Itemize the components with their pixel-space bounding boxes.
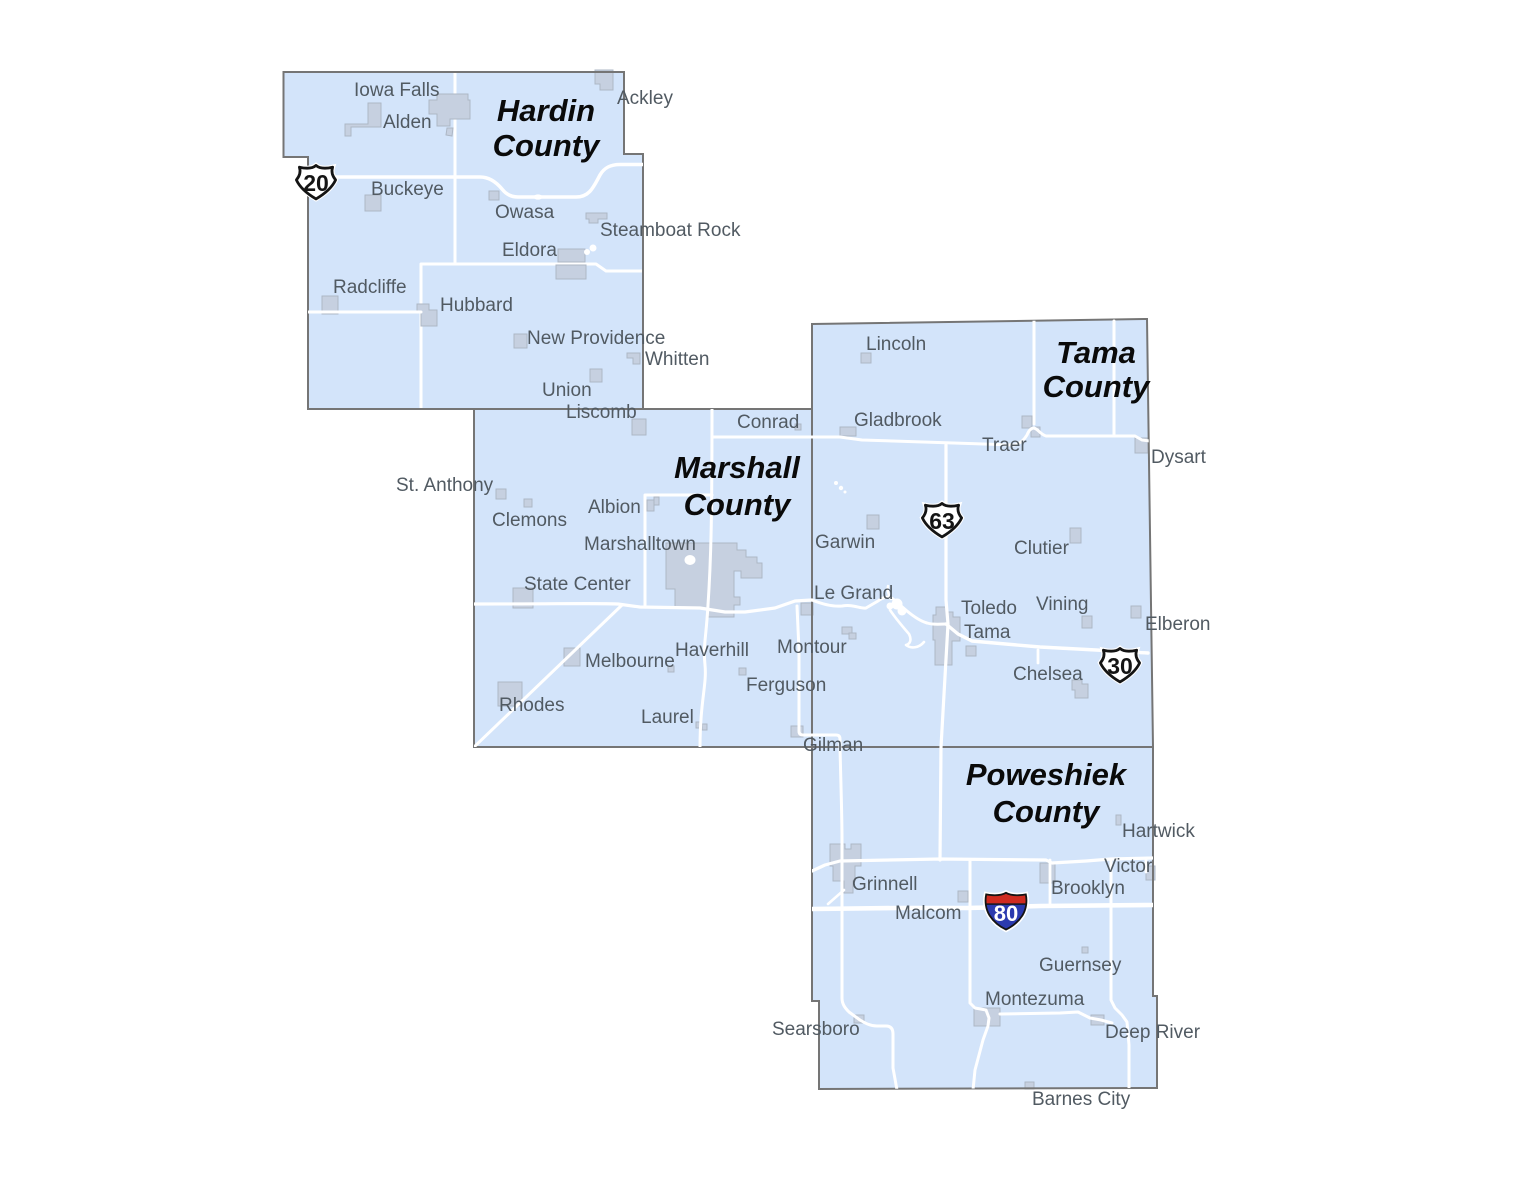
svg-text:Elberon: Elberon [1145,614,1211,635]
svg-text:County: County [1043,369,1152,404]
svg-text:Guernsey: Guernsey [1039,955,1122,976]
svg-text:Whitten: Whitten [645,349,709,370]
svg-text:Ferguson: Ferguson [746,675,826,696]
svg-text:St. Anthony: St. Anthony [396,475,494,496]
svg-text:20: 20 [303,170,329,196]
svg-text:Radcliffe: Radcliffe [333,277,407,298]
svg-text:County: County [993,794,1102,829]
svg-text:Tama: Tama [964,622,1011,643]
svg-text:Searsboro: Searsboro [772,1019,860,1040]
svg-text:Iowa Falls: Iowa Falls [354,80,440,101]
svg-text:Garwin: Garwin [815,532,875,553]
svg-text:63: 63 [929,508,955,534]
svg-text:Tama: Tama [1056,335,1136,370]
svg-text:Union: Union [542,380,592,401]
svg-text:Steamboat Rock: Steamboat Rock [600,220,741,241]
svg-text:Lincoln: Lincoln [866,334,926,355]
svg-text:Traer: Traer [982,435,1027,456]
svg-text:Alden: Alden [383,112,432,133]
svg-text:Grinnell: Grinnell [852,874,917,895]
svg-text:Barnes City: Barnes City [1032,1089,1131,1110]
svg-text:New Providence: New Providence [527,328,665,349]
svg-text:Brooklyn: Brooklyn [1051,878,1125,899]
svg-text:Rhodes: Rhodes [499,695,565,716]
svg-text:Gladbrook: Gladbrook [854,410,942,431]
svg-text:Vining: Vining [1036,594,1088,615]
svg-text:Laurel: Laurel [641,707,694,728]
svg-text:30: 30 [1107,653,1133,679]
svg-text:Conrad: Conrad [737,412,799,433]
svg-text:Hardin: Hardin [497,93,595,128]
svg-text:Melbourne: Melbourne [585,651,675,672]
svg-text:Eldora: Eldora [502,240,557,261]
svg-text:Albion: Albion [588,497,641,518]
svg-text:Montezuma: Montezuma [985,989,1085,1010]
svg-text:80: 80 [994,901,1018,926]
svg-text:Hartwick: Hartwick [1122,821,1195,842]
svg-text:Malcom: Malcom [895,903,962,924]
svg-text:Toledo: Toledo [961,598,1017,619]
svg-text:County: County [493,128,602,163]
svg-text:Marshall: Marshall [674,450,801,485]
svg-text:Marshalltown: Marshalltown [584,534,696,555]
svg-text:Liscomb: Liscomb [566,402,637,423]
svg-text:County: County [684,487,793,522]
svg-text:Montour: Montour [777,637,847,658]
svg-text:Haverhill: Haverhill [675,640,749,661]
svg-text:Owasa: Owasa [495,202,555,223]
svg-text:Dysart: Dysart [1151,447,1207,468]
svg-text:Clutier: Clutier [1014,538,1070,559]
svg-text:Chelsea: Chelsea [1013,664,1083,685]
svg-text:Le Grand: Le Grand [814,583,893,604]
svg-text:Clemons: Clemons [492,510,567,531]
svg-text:Victor: Victor [1104,856,1153,877]
svg-text:Hubbard: Hubbard [440,295,513,316]
svg-text:Buckeye: Buckeye [371,179,444,200]
svg-text:Gilman: Gilman [803,735,863,756]
svg-text:Ackley: Ackley [617,88,673,109]
svg-text:Poweshiek: Poweshiek [966,757,1128,792]
svg-text:State Center: State Center [524,574,631,595]
svg-text:Deep River: Deep River [1105,1022,1201,1043]
